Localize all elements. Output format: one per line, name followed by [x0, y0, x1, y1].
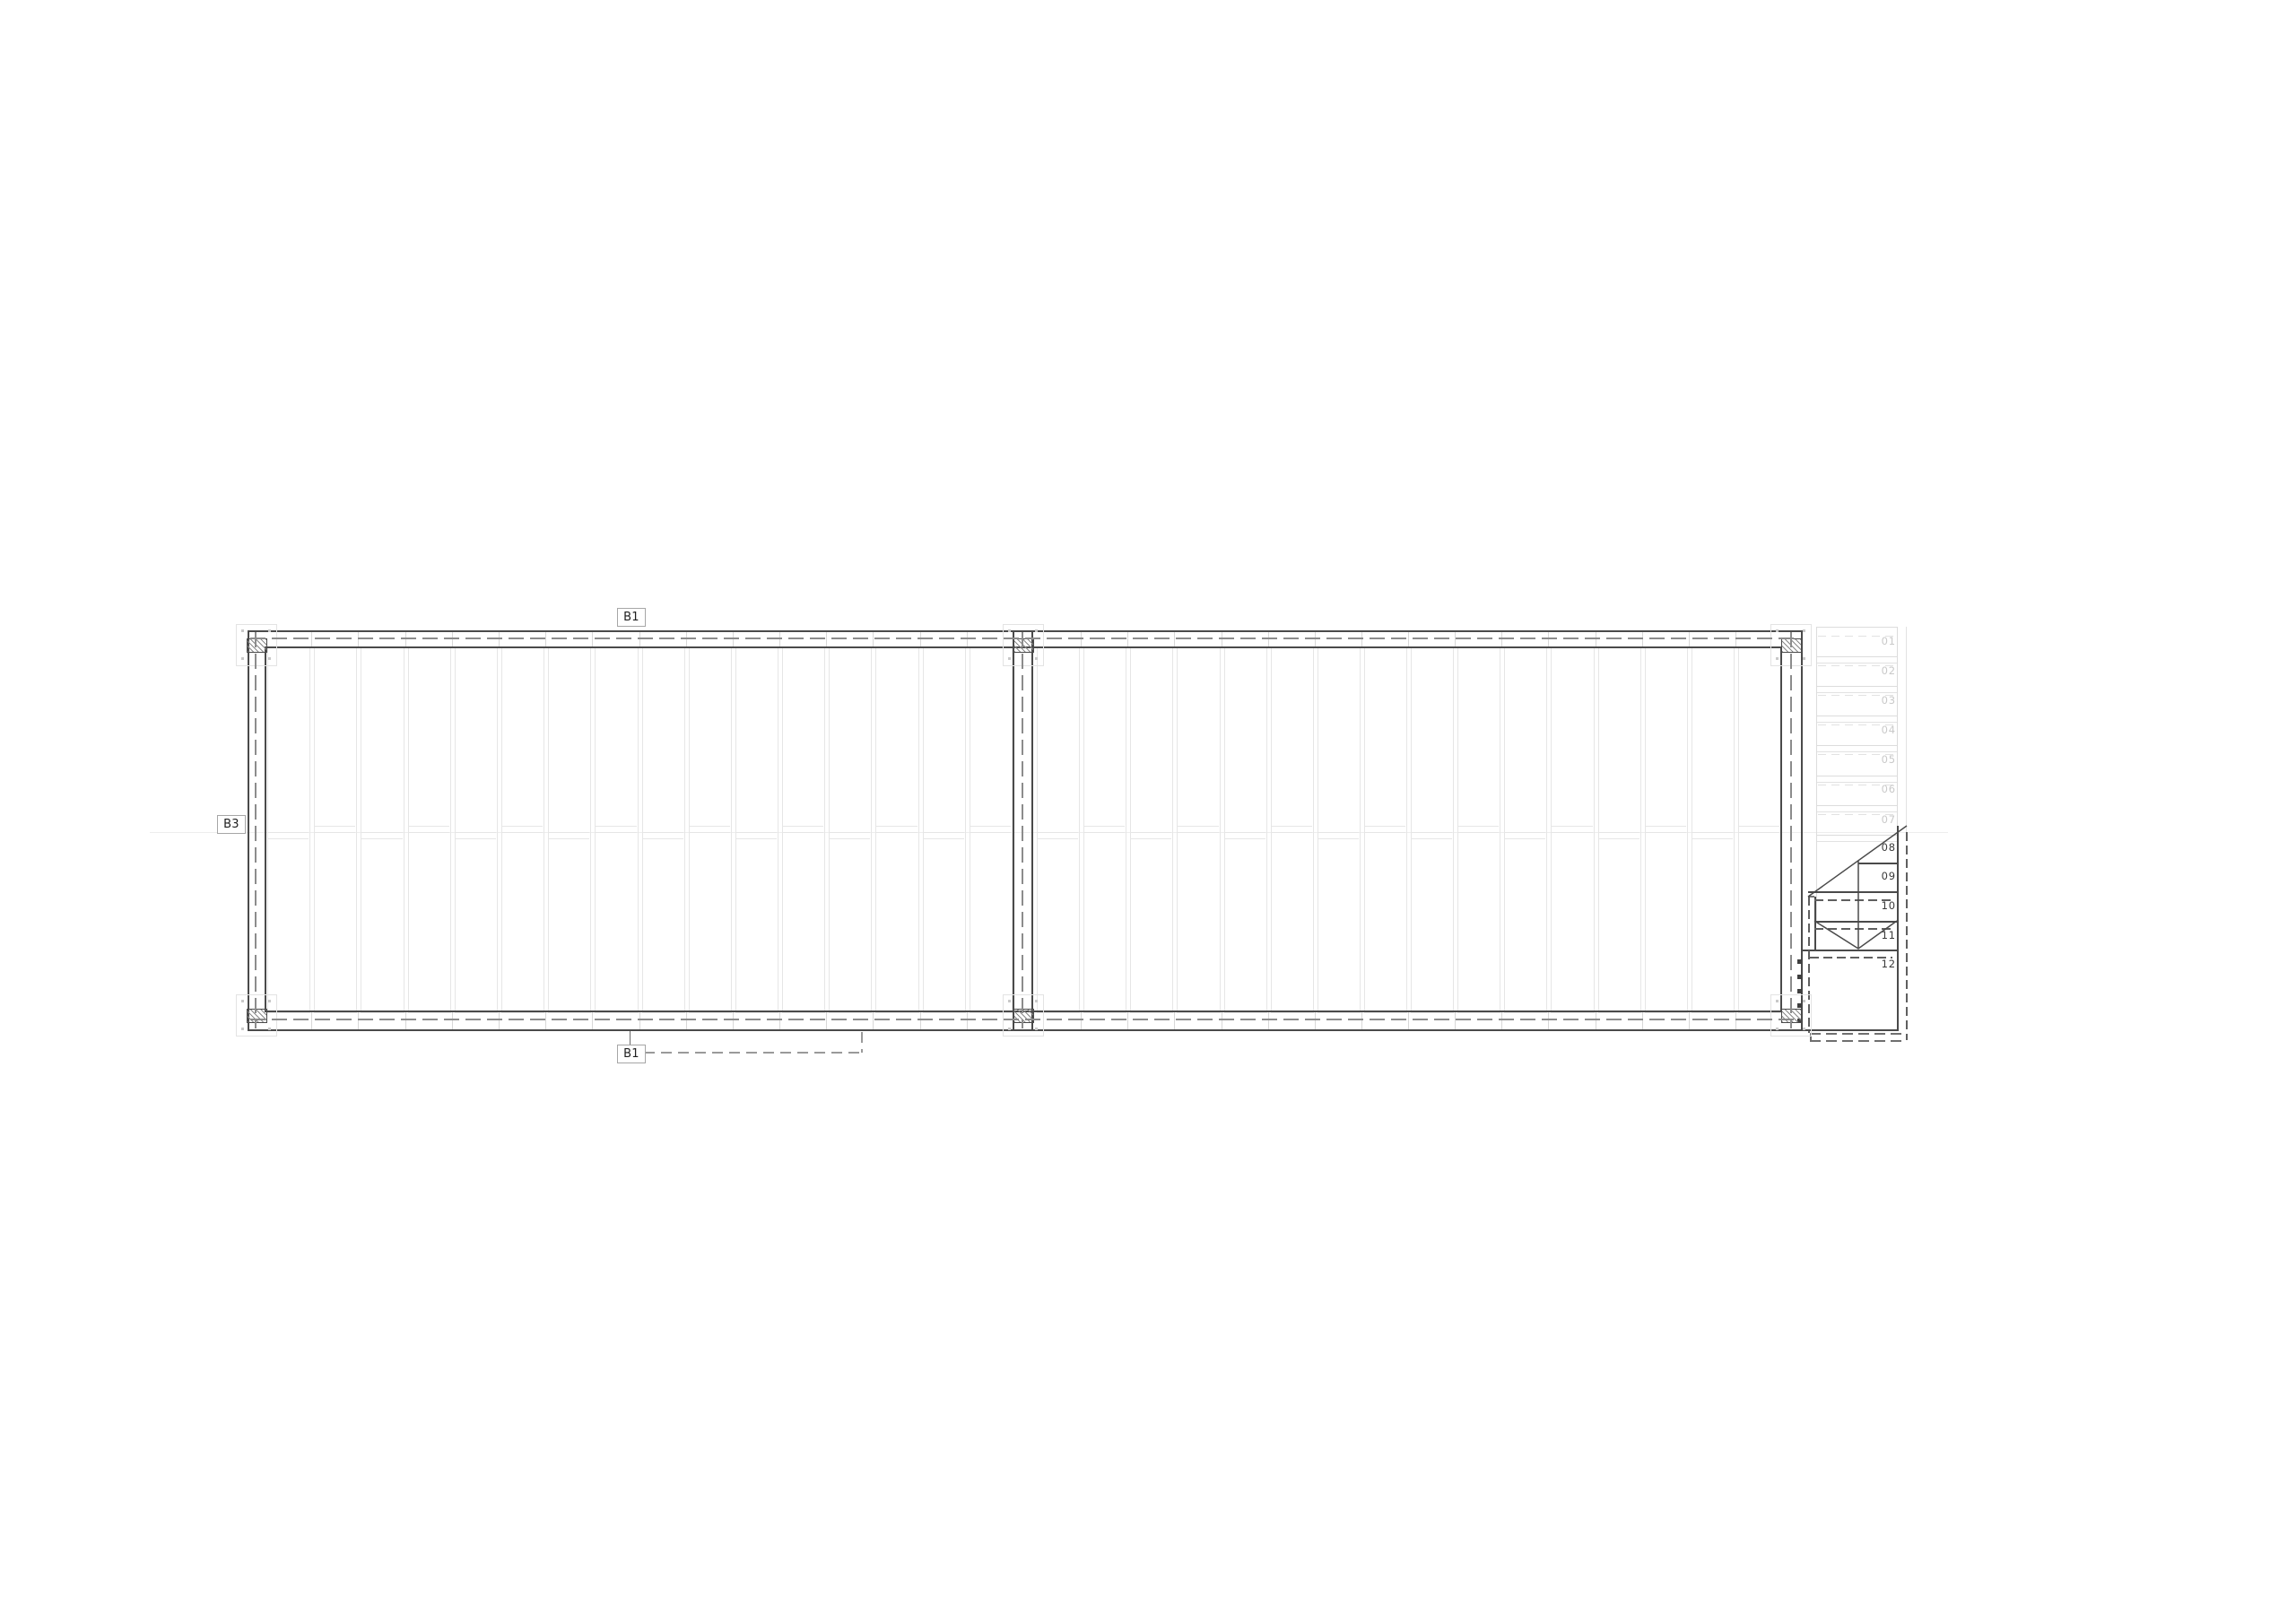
roof-panel	[1504, 647, 1547, 1013]
panel-joint-line	[1224, 838, 1265, 839]
panel-edge-tick	[873, 1012, 874, 1029]
roof-panel	[689, 647, 732, 1013]
stair-break-line-and-direction-arrow	[1794, 807, 1919, 959]
wall-bottom-dashed-centerline	[250, 1019, 1799, 1020]
panel-edge-tick	[405, 1012, 406, 1029]
panel-edge-tick	[1081, 632, 1082, 647]
panel-edge-tick	[405, 632, 406, 647]
panel-edge-tick	[499, 1012, 500, 1029]
panel-joint-line	[1271, 832, 1312, 833]
plate-bolt-dot	[1803, 657, 1805, 660]
beam-extent-dashed-vertical	[861, 1032, 863, 1053]
panel-edge-tick	[1501, 632, 1502, 647]
panel-edge-tick	[639, 632, 640, 647]
plate-bolt-dot	[1776, 1000, 1779, 1002]
panel-joint-line	[782, 826, 823, 827]
panel-edge-tick	[1268, 632, 1269, 647]
panel-edge-tick	[779, 632, 780, 647]
plate-bolt-dot	[1776, 629, 1779, 632]
beam-extent-dashed-horizontal	[644, 1052, 863, 1054]
plate-bolt-dot	[241, 657, 244, 660]
roof-panel	[1457, 647, 1500, 1013]
panel-edge-tick	[1222, 1012, 1222, 1029]
plate-bolt-dot	[1008, 629, 1011, 632]
panel-edge-tick	[1174, 632, 1175, 647]
column-section-hatch	[1013, 1009, 1034, 1023]
panel-joint-line	[501, 826, 543, 827]
column-section-hatch	[247, 1009, 267, 1023]
panel-joint-line	[455, 838, 496, 839]
wall-right-inner-line	[1780, 646, 1782, 1012]
panel-joint-line	[970, 832, 1011, 833]
wall-bolt	[1797, 959, 1802, 964]
wall-right-dashed-centerline	[1790, 632, 1792, 1028]
panel-joint-line	[548, 832, 589, 833]
panel-edge-tick	[733, 632, 734, 647]
stair-tread-number: 11	[1864, 929, 1896, 941]
roof-panel	[782, 647, 825, 1013]
roof-panel	[1224, 647, 1267, 1013]
roof-panel	[1738, 647, 1781, 1013]
panel-joint-line	[1037, 838, 1078, 839]
panel-joint-line	[1083, 832, 1125, 833]
panel-edge-tick	[1268, 1012, 1269, 1029]
panel-joint-line	[501, 832, 543, 833]
panel-joint-line	[970, 826, 1011, 827]
wall-middle-right-line	[1031, 630, 1033, 1031]
panel-joint-line	[642, 832, 683, 833]
panel-edge-tick	[1222, 632, 1222, 647]
plate-bolt-dot	[1803, 1000, 1805, 1002]
panel-joint-line	[1177, 826, 1218, 827]
panel-joint-line	[1224, 832, 1265, 833]
panel-joint-line	[1037, 832, 1078, 833]
landing-dashed-outline	[1810, 1040, 1907, 1042]
panel-edge-tick	[592, 1012, 593, 1029]
plate-bolt-dot	[1035, 629, 1038, 632]
panel-edge-tick	[1315, 632, 1316, 647]
stair-tread-line	[1816, 716, 1897, 716]
panel-joint-line	[1411, 838, 1452, 839]
landing-bottom-line	[1801, 1029, 1899, 1031]
panel-joint-line	[1130, 838, 1171, 839]
panel-edge-tick	[686, 632, 687, 647]
stair-tread-number: 06	[1864, 783, 1896, 795]
stair-tread-number: 10	[1864, 899, 1896, 912]
roof-panel	[1645, 647, 1688, 1013]
panel-joint-line	[689, 832, 730, 833]
column-plate-bottom-middle	[1003, 994, 1044, 1037]
panel-joint-line	[923, 832, 964, 833]
panel-edge-tick	[1689, 632, 1690, 647]
plate-bolt-dot	[1035, 1000, 1038, 1002]
panel-edge-tick	[826, 1012, 827, 1029]
stair-edge-light	[1906, 627, 1907, 834]
panel-edge-tick	[733, 1012, 734, 1029]
stair-tread-number: 05	[1864, 753, 1896, 766]
stair-tread-number: 04	[1864, 724, 1896, 736]
panel-joint-line	[1551, 826, 1592, 827]
panel-joint-line	[1738, 826, 1779, 827]
panel-joint-line	[595, 832, 636, 833]
panel-joint-line	[548, 838, 589, 839]
roof-panel	[829, 647, 872, 1013]
panel-joint-line	[1504, 832, 1545, 833]
stair-riser-line	[1816, 751, 1897, 752]
roof-panel	[408, 647, 451, 1013]
panel-edge-tick	[311, 1012, 312, 1029]
panel-joint-line	[455, 832, 496, 833]
stair-tread-line	[1816, 627, 1897, 628]
wall-left-dashed-centerline	[255, 632, 257, 1028]
panel-joint-line	[1692, 838, 1733, 839]
panel-edge-tick	[1174, 1012, 1175, 1029]
panel-joint-line	[875, 826, 917, 827]
wall-left-outer-line	[248, 630, 249, 1031]
panel-joint-line	[923, 838, 964, 839]
column-plate-top-left	[236, 624, 277, 666]
plate-bolt-dot	[1008, 1028, 1011, 1030]
panel-joint-line	[314, 832, 355, 833]
panel-joint-line	[1364, 832, 1405, 833]
beam-tag-b1-bottom: B1	[617, 1045, 646, 1063]
stair-edge-light	[1897, 627, 1898, 834]
plate-bolt-dot	[268, 629, 271, 632]
panel-joint-line	[267, 832, 309, 833]
floor-plan-canvas: B1 B3 B1 01 02 03 04 05 06 07 08 09 10 1…	[0, 0, 2296, 1622]
plate-bolt-dot	[241, 1028, 244, 1030]
panel-edge-tick	[1596, 1012, 1596, 1029]
panel-joint-line	[1645, 826, 1686, 827]
panel-edge-tick	[1081, 1012, 1082, 1029]
roof-panel	[1692, 647, 1735, 1013]
roof-panel	[923, 647, 966, 1013]
panel-joint-line	[1411, 832, 1452, 833]
stair-tread-line	[1816, 776, 1897, 776]
wall-left-inner-line	[265, 646, 266, 1012]
roof-panel	[970, 647, 1013, 1013]
stair-tread-number: 09	[1864, 870, 1896, 882]
panel-edge-tick	[358, 632, 359, 647]
beam-tag-b1-top-label: B1	[623, 611, 639, 624]
panel-edge-tick	[1408, 632, 1409, 647]
panel-joint-line	[1598, 838, 1639, 839]
panel-edge-tick	[1455, 1012, 1456, 1029]
panel-edge-tick	[967, 632, 968, 647]
panel-edge-tick	[452, 1012, 453, 1029]
plate-bolt-dot	[1035, 657, 1038, 660]
panel-edge-tick	[1735, 632, 1736, 647]
beam-tag-b1-top: B1	[617, 608, 646, 627]
roof-panel	[361, 647, 404, 1013]
panel-joint-line	[1738, 832, 1779, 833]
panel-joint-line	[829, 838, 870, 839]
beam-tag-leader-line	[630, 1031, 631, 1045]
roof-panel	[1364, 647, 1407, 1013]
panel-edge-tick	[358, 1012, 359, 1029]
panel-edge-tick	[1361, 1012, 1362, 1029]
panel-joint-line	[735, 838, 777, 839]
panel-edge-tick	[1689, 1012, 1690, 1029]
panel-edge-tick	[1127, 632, 1128, 647]
column-plate-bottom-left	[236, 994, 277, 1037]
wall-top-dashed-centerline	[250, 638, 1799, 639]
panel-edge-tick	[1642, 1012, 1643, 1029]
wall-bolt	[1797, 989, 1802, 993]
stair-tread-number: 02	[1864, 664, 1896, 677]
panel-joint-line	[1177, 832, 1218, 833]
stair-tread-line	[1816, 745, 1897, 746]
roof-panel	[314, 647, 357, 1013]
panel-joint-line	[408, 826, 449, 827]
panel-edge-tick	[920, 1012, 921, 1029]
panel-joint-line	[267, 838, 309, 839]
column-section-hatch	[1013, 638, 1034, 653]
roof-panel	[548, 647, 591, 1013]
panel-joint-line	[1318, 832, 1359, 833]
roof-panel	[1130, 647, 1173, 1013]
stair-tread-number: 08	[1864, 841, 1896, 854]
panel-joint-line	[1645, 832, 1686, 833]
stair-riser-line	[1816, 692, 1897, 693]
panel-edge-tick	[545, 1012, 546, 1029]
panel-joint-line	[1692, 832, 1733, 833]
roof-panel	[1551, 647, 1594, 1013]
beam-tag-b3-left-label: B3	[223, 818, 239, 831]
panel-joint-line	[595, 826, 636, 827]
panel-joint-line	[1457, 832, 1499, 833]
panel-joint-line	[1457, 826, 1499, 827]
panel-edge-tick	[1642, 632, 1643, 647]
panel-edge-tick	[1548, 632, 1549, 647]
beam-tag-b1-bottom-label: B1	[623, 1047, 639, 1061]
roof-panel	[501, 647, 544, 1013]
panel-joint-line	[1364, 826, 1405, 827]
roof-panel	[642, 647, 685, 1013]
roof-panel	[1271, 647, 1314, 1013]
panel-joint-line	[689, 826, 730, 827]
panel-joint-line	[1551, 832, 1592, 833]
stair-riser-line	[1816, 722, 1897, 723]
panel-joint-line	[782, 832, 823, 833]
panel-joint-line	[1083, 826, 1125, 827]
panel-joint-line	[875, 832, 917, 833]
panel-edge-tick	[686, 1012, 687, 1029]
roof-panel	[455, 647, 498, 1013]
plate-bolt-dot	[241, 1000, 244, 1002]
panel-joint-line	[1318, 838, 1359, 839]
plate-bolt-dot	[1008, 657, 1011, 660]
stair-riser-line	[1816, 663, 1897, 664]
column-section-hatch	[247, 638, 267, 653]
plate-bolt-dot	[268, 1000, 271, 1002]
stair-tread-line	[1816, 686, 1897, 687]
panel-edge-tick	[1127, 1012, 1128, 1029]
panel-edge-tick	[311, 632, 312, 647]
plate-bolt-dot	[241, 629, 244, 632]
panel-edge-tick	[499, 632, 500, 647]
panel-edge-tick	[1315, 1012, 1316, 1029]
stair-tread-number: 03	[1864, 694, 1896, 707]
panel-joint-line	[1130, 832, 1171, 833]
panel-joint-line	[642, 838, 683, 839]
roof-panel	[1318, 647, 1361, 1013]
panel-edge-tick	[592, 632, 593, 647]
stair-tread-number: 07	[1864, 813, 1896, 826]
panel-joint-line	[1598, 832, 1639, 833]
beam-tag-b3-left: B3	[217, 815, 246, 834]
roof-panel	[735, 647, 778, 1013]
stair-tread-line	[1816, 805, 1897, 806]
panel-edge-tick	[1501, 1012, 1502, 1029]
column-plate-top-middle	[1003, 624, 1044, 666]
plate-bolt-dot	[1803, 1028, 1805, 1030]
stair-tread-line	[1816, 656, 1897, 657]
plate-bolt-dot	[268, 1028, 271, 1030]
panel-edge-tick	[1408, 1012, 1409, 1029]
panel-joint-line	[408, 832, 449, 833]
wall-bolt	[1797, 975, 1802, 979]
panel-edge-tick	[545, 632, 546, 647]
plate-bolt-dot	[268, 657, 271, 660]
panel-edge-tick	[452, 632, 453, 647]
panel-joint-line	[314, 826, 355, 827]
panel-edge-tick	[920, 632, 921, 647]
panel-edge-tick	[1596, 632, 1596, 647]
panel-edge-tick	[1455, 632, 1456, 647]
stair-tread-number: 01	[1864, 635, 1896, 647]
panel-joint-line	[735, 832, 777, 833]
landing-dashed-outline	[1810, 1033, 1907, 1035]
plate-bolt-dot	[1776, 1028, 1779, 1030]
panel-joint-line	[361, 838, 402, 839]
wall-middle-left-line	[1013, 630, 1014, 1031]
panel-edge-tick	[1361, 632, 1362, 647]
panel-edge-tick	[1735, 1012, 1736, 1029]
panel-edge-tick	[826, 632, 827, 647]
plate-bolt-dot	[1803, 629, 1805, 632]
roof-panel	[1037, 647, 1080, 1013]
panel-edge-tick	[873, 632, 874, 647]
panel-joint-line	[829, 832, 870, 833]
panel-edge-tick	[1548, 1012, 1549, 1029]
panel-joint-line	[361, 832, 402, 833]
panel-joint-line	[1504, 838, 1545, 839]
wall-middle-dashed-centerline	[1022, 632, 1023, 1028]
panel-edge-tick	[967, 1012, 968, 1029]
roof-panel	[267, 647, 310, 1013]
plate-bolt-dot	[1776, 657, 1779, 660]
roof-panel	[1177, 647, 1220, 1013]
panel-edge-tick	[639, 1012, 640, 1029]
roof-panel	[595, 647, 638, 1013]
plate-bolt-dot	[1035, 1028, 1038, 1030]
stair-tread-number: 12	[1864, 958, 1896, 970]
roof-panel	[1411, 647, 1454, 1013]
panel-joint-line	[1271, 826, 1312, 827]
panel-edge-tick	[779, 1012, 780, 1029]
roof-panel	[1083, 647, 1126, 1013]
plate-bolt-dot	[1008, 1000, 1011, 1002]
roof-panel	[875, 647, 918, 1013]
roof-panel	[1598, 647, 1641, 1013]
